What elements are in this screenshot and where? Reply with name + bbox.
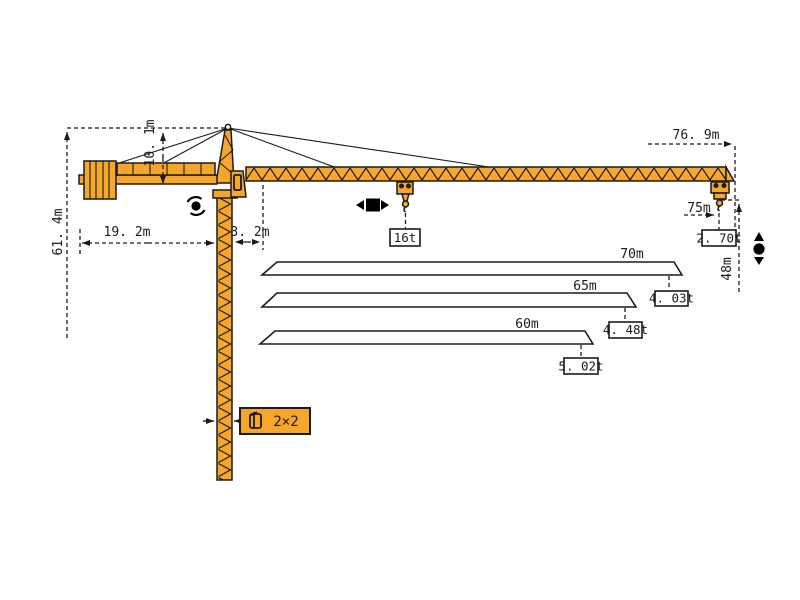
max-load-label: 16t xyxy=(394,230,417,245)
load-60m-label: 5. 02t xyxy=(558,359,603,374)
radius-label: 75m xyxy=(687,201,711,216)
tip-load-label: 2. 70t xyxy=(696,231,741,246)
load-70m-label: 4. 03t xyxy=(649,291,694,306)
hook-mid xyxy=(403,201,409,207)
motion-icons xyxy=(188,197,765,265)
left-right-arrow-icon xyxy=(356,199,389,212)
head-height-label: 10. 1m xyxy=(143,119,158,166)
crane-diagram-canvas: 61. 4m 10. 1m 19. 2m 3. 2m 76. 9m 75m 48… xyxy=(0,0,800,600)
counterjib-label: 19. 2m xyxy=(104,225,151,240)
jib-option-bars xyxy=(260,262,682,357)
apex-pin xyxy=(225,124,230,129)
jib-bar-70m xyxy=(262,262,682,275)
counterweight-blocks xyxy=(84,161,116,199)
jib-bar-65m xyxy=(262,293,636,307)
trolley-mid xyxy=(397,182,413,212)
bar-60m-label: 60m xyxy=(515,317,539,332)
jib-total-label: 76. 9m xyxy=(673,128,720,143)
up-down-arrow-icon xyxy=(753,232,764,265)
bar-65m-label: 65m xyxy=(573,279,597,294)
counter-jib-platform xyxy=(117,163,215,175)
jib-tip xyxy=(726,167,734,181)
crane-diagram-page: 61. 4m 10. 1m 19. 2m 3. 2m 76. 9m 75m 48… xyxy=(0,0,800,600)
main-jib xyxy=(246,167,734,181)
total-height-label: 61. 4m xyxy=(51,208,66,255)
jib-bar-60m xyxy=(260,331,593,344)
tie-rods xyxy=(119,128,489,168)
operator-cab xyxy=(231,171,246,197)
trolley-tip xyxy=(711,182,729,211)
load-65m-label: 4. 48t xyxy=(603,322,648,337)
offset-label: 3. 2m xyxy=(230,225,269,240)
bar-70m-label: 70m xyxy=(620,247,644,262)
tip-height-label: 48m xyxy=(720,257,735,281)
hook-tip xyxy=(717,200,723,206)
rotation-icon xyxy=(188,197,205,215)
mast-section-label: 2×2 xyxy=(273,414,298,430)
